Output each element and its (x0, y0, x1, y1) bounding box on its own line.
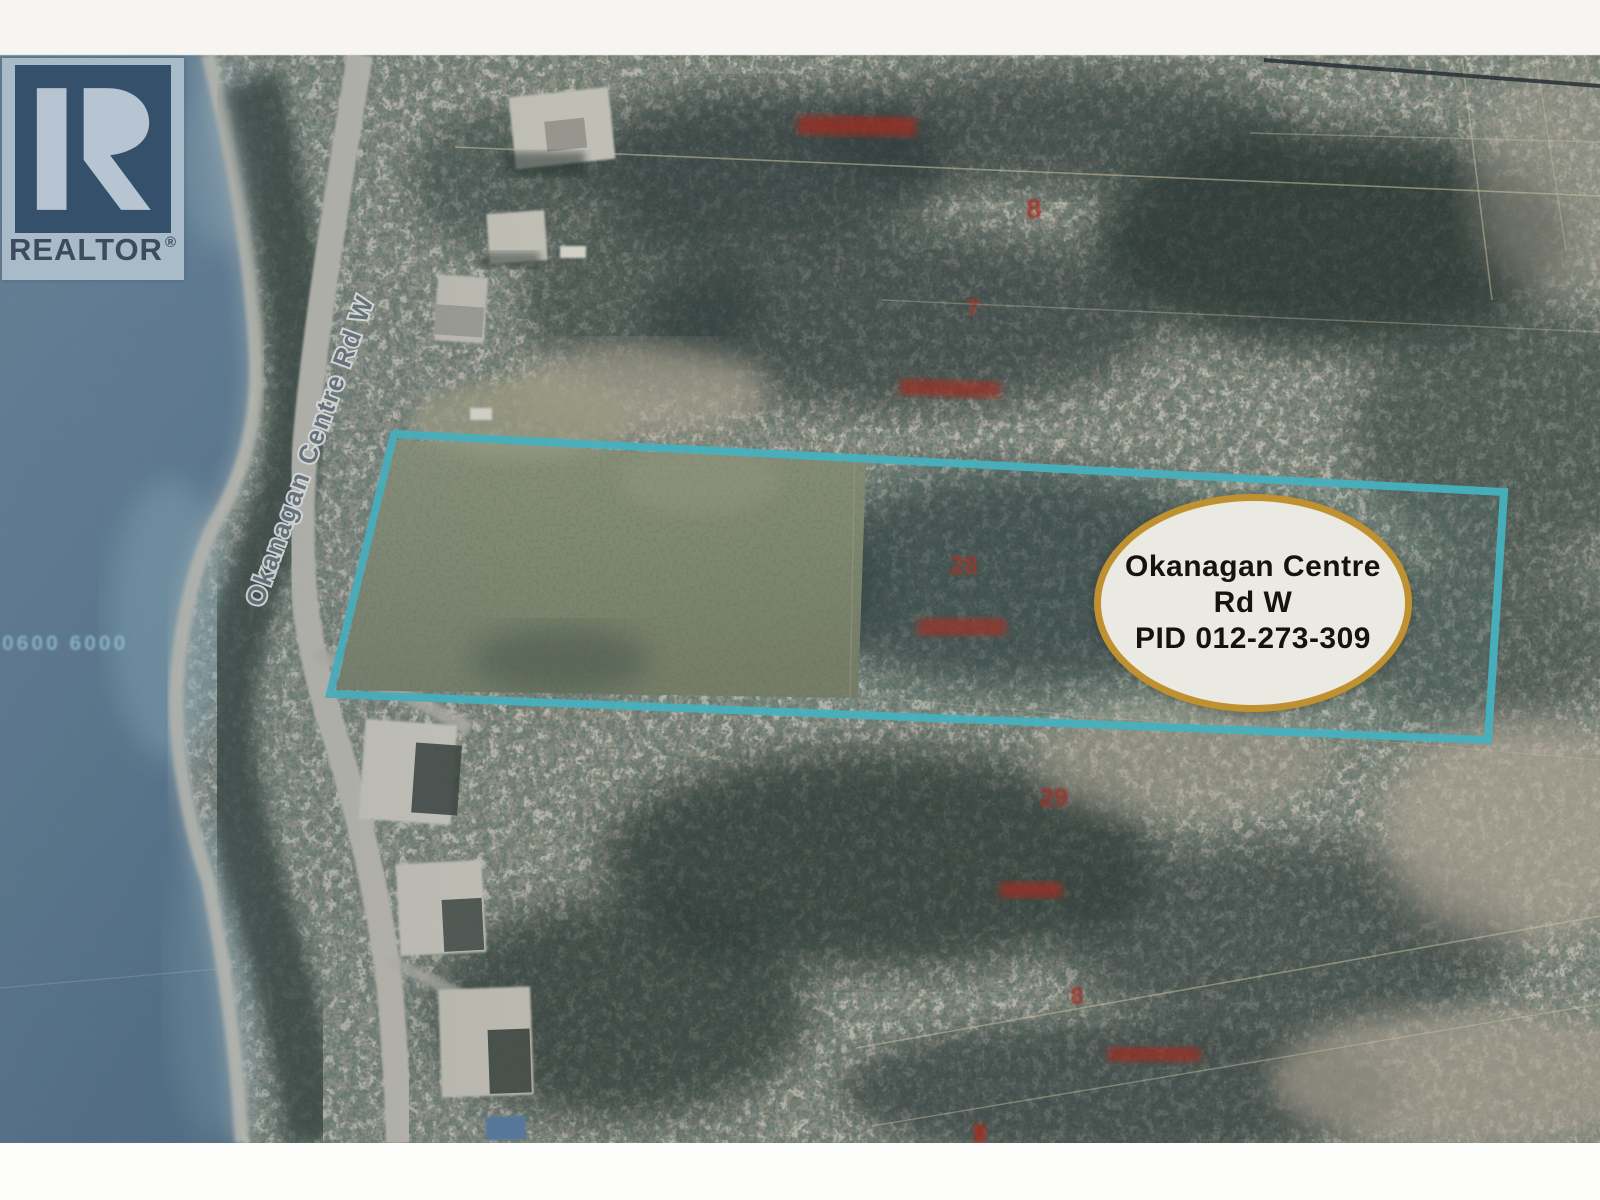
photo-bottom-border (0, 1143, 1600, 1200)
listing-aerial-photo: 8 7 28 29 8 Okanagan Centre Rd W 0600 60… (0, 0, 1600, 1200)
realtor-wordmark: REALTOR® (9, 235, 177, 265)
realtor-r-icon (15, 65, 171, 233)
realtor-word-text: REALTOR (9, 235, 163, 265)
badge-pid: PID 012-273-309 (1135, 621, 1371, 657)
registered-trademark-symbol: ® (165, 235, 177, 251)
photo-top-border (0, 0, 1600, 55)
badge-road-line2: Rd W (1214, 585, 1293, 621)
badge-road-line1: Okanagan Centre (1125, 549, 1381, 585)
property-badge: Okanagan Centre Rd W PID 012-273-309 (1094, 494, 1412, 712)
realtor-logo: REALTOR® (2, 58, 184, 280)
